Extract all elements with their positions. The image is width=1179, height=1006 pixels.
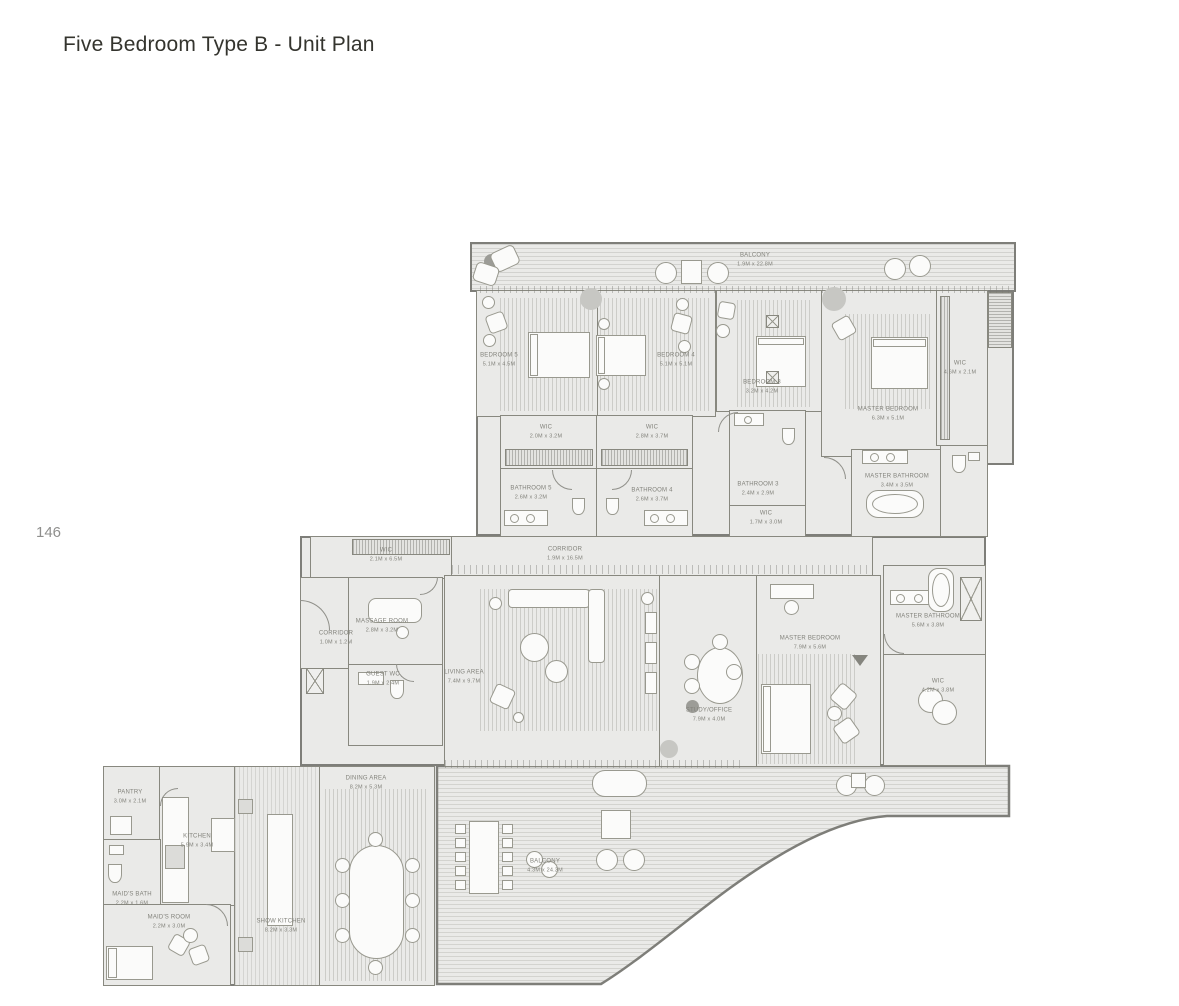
label-master-bedroom-top: MASTER BEDROOM6.3M x 5.1M	[858, 405, 918, 422]
balcony-bottom	[435, 764, 1013, 987]
label-kitchen: KITCHEN5.9M x 3.4M	[181, 832, 213, 849]
shelf	[645, 672, 657, 694]
label-wic-right: WIC4.6M x 2.1M	[944, 359, 976, 376]
shelf	[645, 642, 657, 664]
desk-chair	[684, 654, 700, 670]
sink	[650, 514, 659, 523]
bathtub-basin	[932, 573, 950, 607]
cabinet	[238, 937, 253, 952]
lounge-chair	[717, 301, 737, 321]
label-dining-area: DINING AREA8.2M x 5.3M	[346, 774, 387, 791]
label-wic-small: WIC1.7M x 3.0M	[750, 509, 782, 526]
label-balcony-top: BALCONY1.9M x 22.8M	[737, 251, 773, 268]
kitchen-counter	[211, 818, 235, 852]
side-table	[598, 318, 610, 330]
label-pantry: PANTRY3.0M x 2.1M	[114, 788, 146, 805]
balcony-bottom-shape	[437, 766, 1009, 984]
label-study: STUDY/OFFICE7.9M x 4.0M	[686, 706, 732, 723]
pantry-shelf	[110, 816, 132, 835]
wardrobe	[601, 449, 688, 466]
sofa	[508, 589, 590, 608]
side-table	[489, 597, 502, 610]
label-show-kitchen: SHOW KITCHEN8.2M x 3.3M	[256, 917, 305, 934]
sink	[109, 845, 124, 855]
side-table	[827, 706, 842, 721]
label-corridor-small: CORRIDOR1.0M x 1.2M	[319, 629, 353, 646]
label-master-bedroom-low: MASTER BEDROOM7.9M x 5.6M	[780, 634, 840, 651]
dining-chair	[405, 928, 420, 943]
balcony-chair	[502, 852, 513, 862]
balcony-chair	[623, 849, 645, 871]
glazing-strip	[452, 565, 870, 574]
label-bedroom-5: BEDROOM 55.1M x 4.5M	[480, 351, 518, 368]
label-maids-room: MAID'S ROOM2.2M x 3.0M	[148, 913, 191, 930]
service-shaft	[988, 292, 1012, 348]
dining-table	[349, 845, 404, 959]
label-guest-wc: GUEST WC1.9M x 2.4M	[366, 670, 400, 687]
sink	[896, 594, 905, 603]
label-bedroom-4: BEDROOM 45.1M x 5.1M	[657, 351, 695, 368]
bed-pillow	[758, 338, 804, 345]
label-balcony-bottom: BALCONY4.3M x 24.3M	[527, 857, 563, 874]
balcony-chair	[455, 852, 466, 862]
sink	[886, 453, 895, 462]
cabinet	[238, 799, 253, 814]
coffee-table	[520, 633, 549, 662]
bed-pillow	[530, 334, 538, 376]
label-maids-bath: MAID'S BATH2.2M x 1.6M	[112, 890, 152, 907]
label-wic-low: WIC4.2M x 3.8M	[922, 677, 954, 694]
balcony-sofa	[592, 770, 647, 797]
balcony-chair	[909, 255, 931, 277]
desk	[770, 584, 814, 599]
dining-chair	[335, 928, 350, 943]
label-wic-b4: WIC2.8M x 3.7M	[636, 423, 668, 440]
balcony-chair	[502, 880, 513, 890]
column	[822, 287, 846, 311]
label-bathroom-5: BATHROOM 52.6M x 3.2M	[510, 484, 551, 501]
balcony-chair	[707, 262, 729, 284]
desk-chair	[712, 634, 728, 650]
balcony-long-table	[469, 821, 499, 894]
label-bedroom-3: BEDROOM 33.2M x 4.2M	[743, 378, 781, 395]
balcony-chair	[502, 866, 513, 876]
toilet	[108, 864, 122, 883]
dining-chair	[405, 893, 420, 908]
coffee-table	[545, 660, 568, 683]
sink	[510, 514, 519, 523]
balcony-chair	[455, 824, 466, 834]
kitchen-island	[267, 814, 293, 926]
balcony-chair	[502, 838, 513, 848]
desk-chair	[684, 678, 700, 694]
sofa	[588, 589, 605, 663]
rug	[480, 589, 660, 731]
balcony-chair	[596, 849, 618, 871]
label-massage-room: MASSAGE ROOM2.8M x 3.2M	[356, 617, 408, 634]
balcony-chair	[884, 258, 906, 280]
column	[660, 740, 678, 758]
side-table	[598, 378, 610, 390]
balcony-chair	[864, 775, 885, 796]
entry-marker-triangle	[852, 655, 868, 666]
label-wic-b5: WIC2.0M x 3.2M	[530, 423, 562, 440]
sink	[870, 453, 879, 462]
glazing-strip	[445, 760, 745, 768]
dining-chair	[368, 960, 383, 975]
sink	[968, 452, 980, 461]
page-title: Five Bedroom Type B - Unit Plan	[63, 33, 375, 57]
toilet	[606, 498, 619, 515]
balcony-chair	[502, 824, 513, 834]
floor-plan-page: Five Bedroom Type B - Unit Plan 146	[0, 0, 1179, 1006]
side-table	[716, 324, 730, 338]
label-bathroom-4: BATHROOM 42.6M x 3.7M	[631, 486, 672, 503]
bed-pillow	[763, 686, 771, 752]
sink	[744, 416, 752, 424]
label-master-bathroom-top: MASTER BATHROOM3.4M x 3.5M	[865, 472, 929, 489]
page-number: 146	[36, 524, 61, 541]
balcony-chair	[455, 880, 466, 890]
side-table	[482, 296, 495, 309]
toilet	[782, 428, 795, 445]
shaft-x-box	[306, 668, 324, 694]
label-bathroom-3: BATHROOM 32.4M x 2.9M	[737, 480, 778, 497]
desk-chair	[726, 664, 742, 680]
glazing-strip	[480, 286, 1012, 293]
balcony-table	[681, 260, 702, 284]
balcony-table	[601, 810, 631, 839]
dining-chair	[368, 832, 383, 847]
bed-pillow	[873, 339, 926, 347]
side-table	[513, 712, 524, 723]
column	[580, 288, 602, 310]
shelf	[645, 612, 657, 634]
label-corridor-main: CORRIDOR1.9M x 16.5M	[547, 545, 583, 562]
side-table	[483, 334, 496, 347]
balcony-chair	[455, 838, 466, 848]
toilet	[952, 455, 966, 473]
balcony-chair	[655, 262, 677, 284]
label-living-area: LIVING AREA7.4M x 9.7M	[444, 668, 484, 685]
nightstand	[766, 315, 779, 328]
wardrobe	[505, 449, 593, 466]
shaft-x-box	[960, 577, 982, 621]
side-table	[641, 592, 654, 605]
bed-pillow	[108, 948, 117, 978]
desk-chair	[784, 600, 799, 615]
dining-chair	[405, 858, 420, 873]
balcony-chair	[455, 866, 466, 876]
sink	[666, 514, 675, 523]
sink	[526, 514, 535, 523]
dining-chair	[335, 893, 350, 908]
bed-pillow	[598, 337, 605, 374]
sink	[914, 594, 923, 603]
label-master-bathroom-low: MASTER BATHROOM5.6M x 3.8M	[896, 612, 960, 629]
toilet	[572, 498, 585, 515]
dining-chair	[335, 858, 350, 873]
ottoman	[932, 700, 957, 725]
sink-counter	[862, 450, 908, 464]
bathtub-basin	[872, 494, 918, 514]
side-table	[676, 298, 689, 311]
label-wic-mid: WIC2.1M x 6.5M	[370, 546, 402, 563]
balcony-table	[851, 773, 866, 788]
